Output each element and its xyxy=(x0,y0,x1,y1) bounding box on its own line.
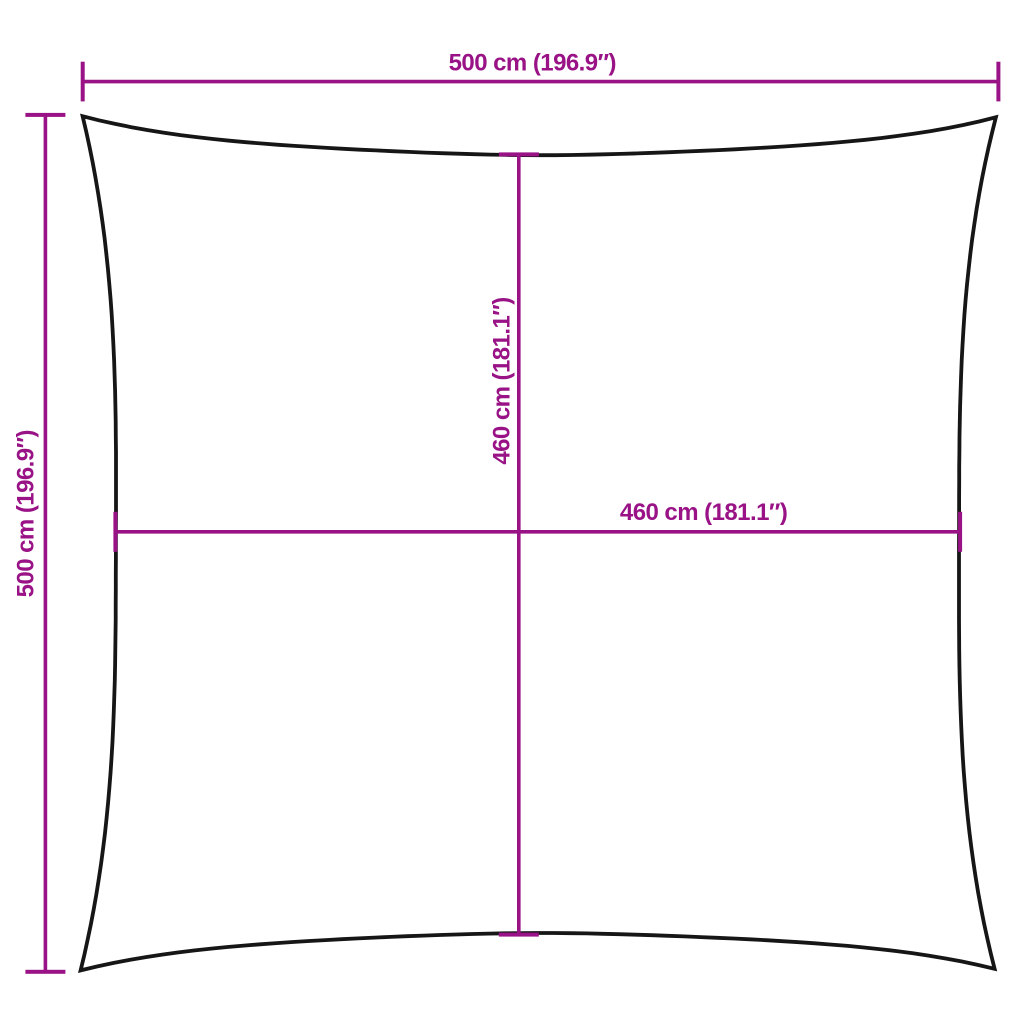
svg-text:460 cm (181.1″): 460 cm (181.1″) xyxy=(620,499,787,526)
svg-text:460 cm (181.1″): 460 cm (181.1″) xyxy=(489,297,516,464)
svg-text:500 cm (196.9″): 500 cm (196.9″) xyxy=(12,430,39,597)
svg-text:500 cm (196.9″): 500 cm (196.9″) xyxy=(449,50,616,77)
